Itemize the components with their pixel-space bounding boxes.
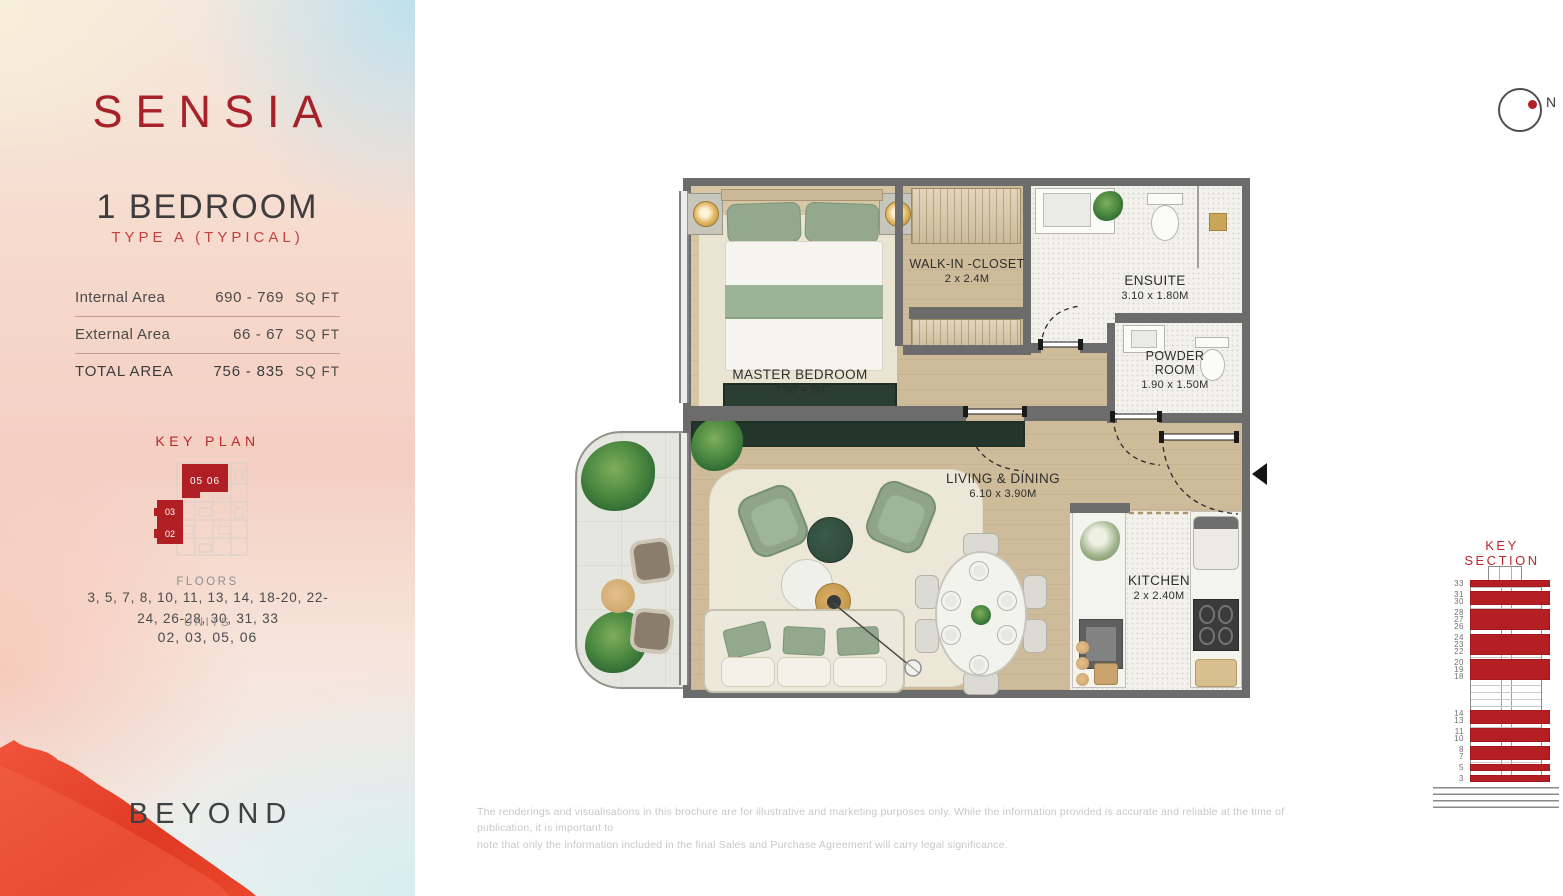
key-plan-title: KEY PLAN (0, 433, 415, 449)
dining-chair (1023, 619, 1047, 653)
shower-head-icon (1209, 213, 1227, 231)
tower-crown (1488, 566, 1522, 580)
plate-icon (969, 655, 989, 675)
wall (1024, 406, 1107, 421)
room-label-kitchen: KITCHEN2 x 2.40M (1128, 573, 1190, 602)
ensuite-sink-icon (1043, 193, 1091, 227)
area-row-internal: Internal Area 690 - 769 SQ FT (75, 280, 340, 317)
area-label: TOTAL AREA (75, 363, 184, 380)
stove-icon (1193, 599, 1239, 651)
key-section-floor-group: 1413 (1444, 710, 1548, 724)
key-section-floor-group: 242322 (1444, 634, 1548, 655)
wall (1107, 323, 1115, 423)
wardrobe (911, 188, 1021, 244)
key-section-gap (1444, 684, 1548, 710)
key-section-floor-group: 282726 (1444, 609, 1548, 630)
bread-board-icon (1094, 663, 1118, 685)
area-value: 756 - 835 (184, 363, 284, 380)
floor-plan: MASTER BEDROOM4.90 x 3M WALK-IN -CLOSET2… (575, 173, 1275, 708)
table-tray (827, 595, 841, 609)
kitchen-jar-icon (1076, 641, 1089, 654)
centerpiece-icon (971, 605, 991, 625)
key-plan-unit-02: 02 (165, 529, 175, 539)
wall (1159, 413, 1242, 423)
key-section-floor-group: 5 (1444, 764, 1548, 771)
room-label-master-bedroom: MASTER BEDROOM4.90 x 3M (732, 367, 867, 396)
sidebar-panel: SENSIA 1 BEDROOM TYPE A (TYPICAL) Intern… (0, 0, 415, 896)
units-value: 02, 03, 05, 06 (0, 629, 415, 645)
wall (1031, 343, 1041, 353)
key-section-title: KEY SECTION (1446, 538, 1558, 568)
tower-podium (1433, 787, 1559, 810)
unit-subtitle: TYPE A (TYPICAL) (0, 229, 415, 246)
fridge-icon (1193, 516, 1239, 570)
room-label-living-dining: LIVING & DINING6.10 x 3.90M (946, 471, 1060, 500)
powder-toilet-tank (1195, 337, 1229, 348)
key-section-floor-group: 1110 (1444, 728, 1548, 742)
area-label: Internal Area (75, 289, 184, 306)
plate-icon (969, 561, 989, 581)
key-section-floor-group: 201918 (1444, 659, 1548, 680)
balcony-window (679, 433, 689, 685)
key-section-diagram: 333130282726242322201918141311108753 (1444, 566, 1548, 810)
sofa-pillow (836, 626, 879, 656)
wall (1107, 413, 1117, 423)
red-splash-art (0, 686, 415, 896)
balcony-pouf (601, 579, 635, 613)
shower-screen (1197, 186, 1199, 268)
key-plan-units-top: 05 06 (190, 476, 220, 487)
sofa-seat (833, 657, 887, 687)
coffee-table-green (807, 517, 853, 563)
sofa-seat (721, 657, 775, 687)
plate-icon (997, 625, 1017, 645)
north-compass-icon (1498, 88, 1542, 132)
room-label-walk-in-closet: WALK-IN -CLOSET2 x 2.4M (902, 257, 1032, 285)
wall (1115, 313, 1242, 323)
plate-icon (997, 591, 1017, 611)
wall (683, 406, 966, 421)
ensuite-toilet-tank (1147, 193, 1183, 205)
bed-headboard (721, 189, 883, 201)
room-label-ensuite: ENSUITE3.10 x 1.80M (1121, 273, 1188, 302)
sofa-pillow (782, 626, 825, 656)
north-label: N (1546, 94, 1556, 110)
disclaimer-text: The renderings and visualisations in thi… (477, 804, 1297, 853)
key-plan-unit-03: 03 (165, 507, 175, 517)
bedside-lamp-icon (693, 201, 719, 227)
area-unit: SQ FT (284, 364, 340, 379)
key-section-floor-group: 3130 (1444, 591, 1548, 605)
kitchen-jar-icon (1076, 657, 1089, 670)
bed-pillow (804, 202, 879, 245)
bed-blanket (725, 285, 883, 319)
ensuite-toilet-icon (1151, 205, 1179, 241)
area-value: 690 - 769 (184, 289, 284, 306)
key-section-floor-group: 87 (1444, 746, 1548, 760)
area-value: 66 - 67 (184, 326, 284, 343)
entry-triangle-marker (1252, 463, 1267, 485)
key-section-floor-group: 33 (1444, 580, 1548, 587)
bed-pillow (726, 202, 801, 245)
brochure-page: { "brand": { "logo_text": "SENSIA", "foo… (0, 0, 1563, 896)
page-title: 1 BEDROOM (0, 188, 415, 227)
units-label: UNITS (0, 617, 415, 629)
key-plan-diagram: 05 06 03 02 (153, 458, 259, 560)
area-unit: SQ FT (284, 327, 340, 342)
kitchen-jar-icon (1076, 673, 1089, 686)
cutting-board-icon (1195, 659, 1237, 687)
area-table: Internal Area 690 - 769 SQ FT External A… (75, 280, 340, 390)
developer-logo: BEYOND (0, 798, 415, 831)
powder-sink-basin (1131, 330, 1157, 348)
plate-icon (941, 625, 961, 645)
room-label-powder-room: POWDER ROOM1.90 x 1.50M (1133, 349, 1217, 391)
balcony-chair (628, 536, 676, 585)
key-section-floor-group: 3 (1444, 775, 1548, 782)
area-label: External Area (75, 326, 184, 343)
area-row-total: TOTAL AREA 756 - 835 SQ FT (75, 354, 340, 390)
floors-label: FLOORS (0, 576, 415, 588)
north-dot-icon (1528, 100, 1537, 109)
area-row-external: External Area 66 - 67 SQ FT (75, 317, 340, 354)
brand-logo: SENSIA (0, 86, 415, 138)
dining-chair (1023, 575, 1047, 609)
wall (909, 307, 1023, 319)
area-unit: SQ FT (284, 290, 340, 305)
plate-icon (941, 591, 961, 611)
wall (1070, 503, 1130, 513)
sofa-seat (777, 657, 831, 687)
key-section-rows: 333130282726242322201918141311108753 (1444, 580, 1548, 782)
wall (903, 345, 1031, 355)
balcony-chair (629, 607, 675, 655)
